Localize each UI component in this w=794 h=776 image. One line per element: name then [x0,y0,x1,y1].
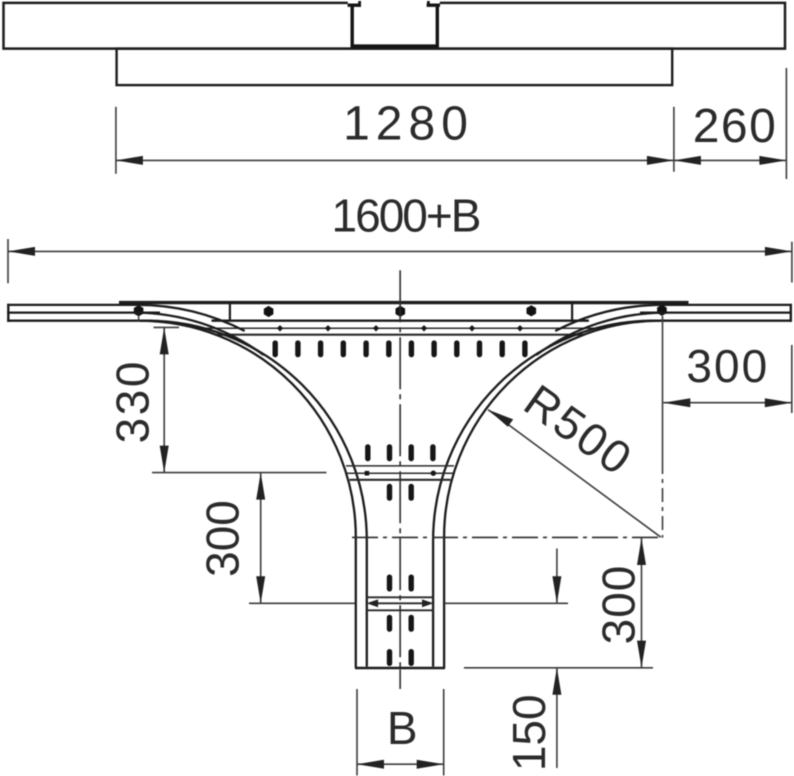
svg-text:300: 300 [686,340,769,392]
svg-text:330: 330 [107,359,159,443]
svg-text:150: 150 [503,694,555,771]
svg-text:300: 300 [593,565,645,645]
svg-text:1280: 1280 [343,98,474,151]
svg-text:B: B [387,702,418,754]
svg-text:1600+B: 1600+B [332,190,480,242]
svg-text:260: 260 [693,100,778,153]
svg-text:300: 300 [197,500,249,577]
